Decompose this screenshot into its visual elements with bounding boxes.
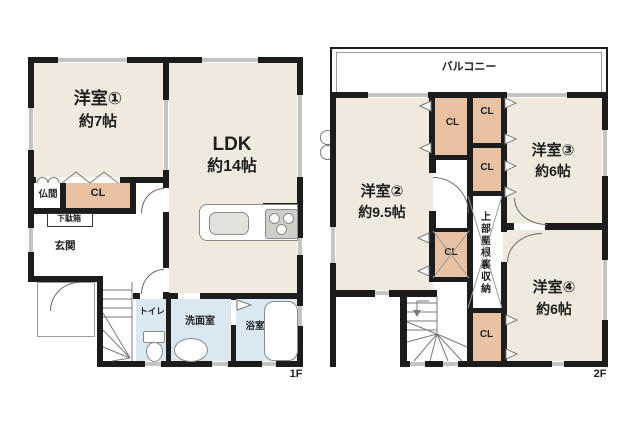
closet-2f-b-fill <box>470 95 504 145</box>
window <box>368 92 428 98</box>
wall <box>473 143 501 148</box>
room-western3-area: 約6帖 <box>503 164 603 179</box>
window <box>28 228 34 252</box>
wall <box>429 155 436 173</box>
toilet-door-arc <box>141 269 164 294</box>
wall-bumps <box>320 131 330 160</box>
window <box>58 57 127 63</box>
vent <box>410 361 425 367</box>
room-western1-name: 洋室① <box>48 90 148 108</box>
closet-2f-a-label: CL <box>435 118 470 129</box>
room-ldk-name: LDK <box>182 135 282 155</box>
floor1-label: 1F <box>280 369 312 381</box>
vent <box>212 361 228 367</box>
vent <box>375 290 389 297</box>
room-western2-name: 洋室② <box>332 184 432 200</box>
washbasin <box>174 338 208 362</box>
wall <box>400 361 608 367</box>
shoe-cabinet-label: 下駄箱 <box>47 215 91 223</box>
wall <box>429 277 473 282</box>
window <box>202 57 258 63</box>
vent <box>262 361 276 367</box>
washroom-label: 洗面室 <box>172 317 228 328</box>
wall <box>429 228 473 232</box>
closet-2f-d-label: CL <box>433 248 469 259</box>
window <box>28 108 34 150</box>
closet-1f-label: CL <box>68 188 128 200</box>
room-ldk-area: 約14帖 <box>182 159 282 176</box>
room-western2-area: 約9.5帖 <box>332 205 432 220</box>
room-western1-area: 約7帖 <box>48 114 148 130</box>
floor2-label: 2F <box>584 369 616 381</box>
vent <box>443 361 458 367</box>
wall <box>467 92 473 361</box>
wall <box>467 191 507 196</box>
stairs-2f <box>407 296 467 361</box>
attic-storage-label: 上部屋根裏収納 <box>478 200 489 306</box>
window <box>297 95 303 177</box>
butsuma-label: 仏間 <box>33 190 63 200</box>
balcony-label: バルコニー <box>409 62 529 74</box>
door-opening <box>178 293 200 299</box>
window <box>330 227 336 263</box>
stove-burner <box>276 224 287 235</box>
stove-burner <box>283 213 294 224</box>
closet-2f-c-label: CL <box>470 163 504 174</box>
entrance-label: 玄関 <box>40 241 90 252</box>
room2-door-arc <box>433 177 469 213</box>
wall <box>467 308 506 313</box>
door-opening <box>231 300 236 325</box>
wall <box>400 290 407 367</box>
floor-plan: 洋室① 約7帖 LDK 約14帖 仏間 CL 下駄箱 玄関 トイレ 洗面室 浴室… <box>0 0 640 425</box>
bathroom-label: 浴室 <box>238 322 272 332</box>
room-western3-name: 洋室③ <box>503 143 603 159</box>
toilet-label: トイレ <box>134 307 170 316</box>
wall <box>130 177 136 214</box>
ldk-door-arc <box>141 188 164 213</box>
room-western4-name: 洋室④ <box>504 280 604 296</box>
closet-door-opening <box>36 177 120 183</box>
sliding-door <box>163 100 169 170</box>
kitchen-sink <box>209 212 249 235</box>
room-western4-area: 約6帖 <box>504 302 604 317</box>
vent <box>552 361 564 367</box>
closet-2f-e-label: CL <box>470 330 503 341</box>
wall <box>97 276 103 367</box>
stairs-1f <box>103 282 132 361</box>
window <box>507 92 567 98</box>
room-ldk-fill <box>166 60 300 296</box>
closet-2f-b-label: CL <box>470 107 504 118</box>
stove-burner <box>269 213 280 224</box>
